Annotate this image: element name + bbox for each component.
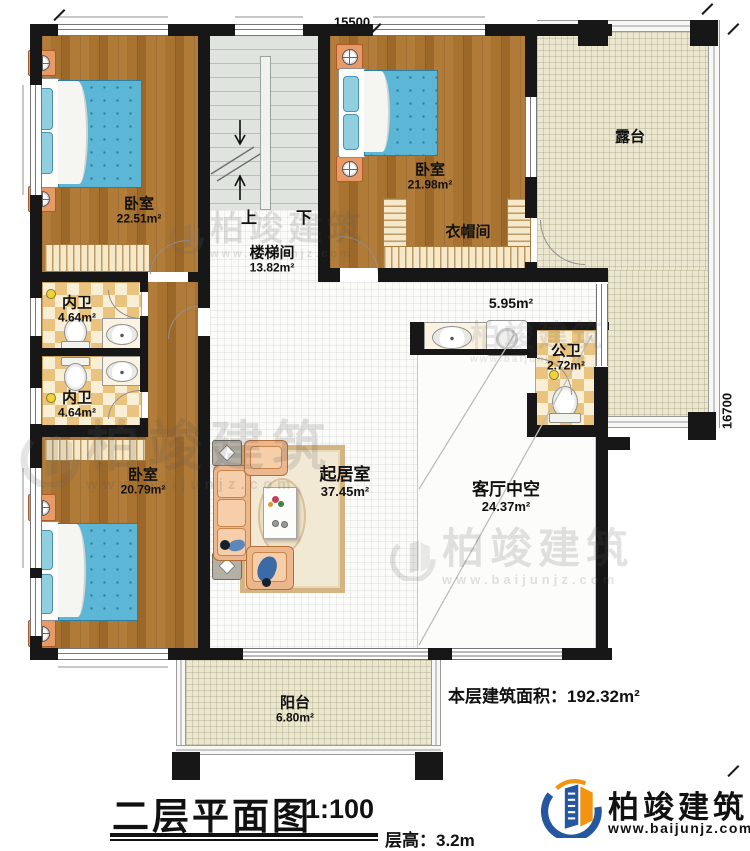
toilet-tank [549, 413, 581, 423]
side-table-top [219, 445, 236, 462]
wall-segment [140, 282, 148, 292]
sink [106, 324, 138, 345]
floor-height-note: 层高：3.2m [385, 826, 475, 851]
window [58, 24, 168, 36]
floor-plan-canvas: 柏竣建筑 www.baijunjz.com 柏竣建筑 www.baijunjz.… [0, 0, 750, 851]
wall-segment [198, 336, 210, 660]
room-name: 卧室 [121, 466, 166, 483]
table-flowers [278, 501, 284, 507]
title-underline-thin [110, 839, 378, 841]
room-area: 21.98m² [408, 179, 453, 193]
wall-segment [410, 349, 530, 355]
room-label-public-bath: 公卫 2.72m² [547, 342, 585, 373]
window-sill [58, 666, 168, 668]
bed-sheet [58, 81, 88, 184]
window [30, 578, 42, 636]
wall-segment [198, 24, 210, 282]
lamp-icon [342, 49, 358, 65]
column [688, 412, 716, 440]
brand-site: www.baijunjz.com [608, 820, 750, 836]
window [30, 298, 42, 336]
sliding-door [452, 648, 562, 660]
room-name: 起居室 [320, 465, 371, 485]
room-area: 20.79m² [121, 484, 166, 498]
bed-pillow [343, 114, 359, 150]
nightstand [336, 44, 363, 70]
room-label-stairwell: 楼梯间 13.82m² [249, 244, 294, 275]
window-sill [235, 16, 303, 18]
room-area: 4.64m² [58, 407, 96, 421]
toilet [64, 363, 87, 391]
column [172, 752, 200, 780]
dimension-tick [727, 765, 739, 777]
column [578, 20, 608, 46]
room-area: 24.37m² [472, 499, 540, 514]
person-head [262, 578, 271, 587]
nightstand [336, 156, 363, 182]
column [415, 752, 443, 780]
window-sill [58, 16, 168, 18]
room-name: 楼梯间 [249, 244, 294, 261]
ceiling-light-icon [46, 289, 56, 299]
cloakroom-rack-bottom [383, 246, 531, 270]
side-table [212, 440, 242, 466]
wall-segment [318, 24, 330, 282]
room-label-terrace: 露台 [615, 128, 645, 145]
room-name: 公卫 [547, 342, 585, 359]
dimension-tick [701, 3, 713, 15]
sink [432, 326, 472, 349]
room-area: 37.45m² [320, 484, 371, 499]
wall-segment [198, 282, 210, 308]
sofa-cushion [250, 446, 282, 469]
window [373, 24, 485, 36]
room-name: 内卫 [58, 294, 96, 311]
room-name: 衣帽间 [445, 223, 490, 240]
window [30, 388, 42, 424]
room-area: 22.51m² [117, 213, 162, 227]
stair-stringer [260, 56, 271, 210]
plan-scale: 1:100 [305, 794, 374, 825]
brand-logo-icon [538, 774, 602, 838]
room-name: 阳台 [276, 694, 314, 711]
room-area: 13.82m² [249, 262, 294, 276]
person-head [220, 540, 230, 550]
room-name: 卧室 [117, 195, 162, 212]
room-label-inner-bath-2: 内卫 4.64m² [58, 389, 96, 420]
room-label-inner-bath-1: 内卫 4.64m² [58, 294, 96, 325]
title-underline-thick [110, 833, 378, 837]
balcony-railing-bottom [176, 745, 441, 755]
wall-segment [330, 268, 340, 282]
coffee-table [263, 487, 297, 539]
bed-sheet [58, 524, 86, 617]
window-sill [373, 16, 485, 18]
room-area: 5.95m² [489, 295, 533, 311]
room-area: 6.80m² [276, 712, 314, 726]
wall-segment [527, 393, 537, 425]
room-area: 2.72m² [547, 360, 585, 374]
window [58, 648, 168, 660]
dimension-tick [727, 23, 739, 35]
column [690, 20, 718, 46]
wall-segment [30, 272, 148, 282]
balcony-railing-left [176, 660, 186, 755]
table-cups [272, 520, 279, 527]
wall-segment [188, 272, 198, 282]
wardrobe-bedroom-3 [44, 439, 146, 461]
bed-pillow [343, 76, 359, 112]
brand-logo [538, 774, 602, 838]
floor-terrace-lower [608, 270, 708, 416]
wall-segment [30, 348, 140, 356]
room-label-living: 起居室 37.45m² [320, 465, 371, 499]
window-sill [22, 85, 24, 195]
terrace-sliding-door [596, 284, 608, 366]
room-label-balcony: 阳台 6.80m² [276, 694, 314, 725]
sliding-door [243, 648, 428, 660]
window [30, 468, 42, 568]
window [30, 85, 42, 195]
room-area: 4.64m² [58, 312, 96, 326]
floor-area-note: 本层建筑面积：192.32m² [448, 682, 640, 707]
wall-segment [596, 425, 608, 660]
sofa-cushion [217, 499, 246, 527]
room-name: 卧室 [408, 161, 453, 178]
sink [106, 361, 138, 382]
ceiling-light-icon [46, 393, 56, 403]
dimension-right: 16700 [720, 393, 735, 429]
wall-segment [378, 268, 608, 282]
room-label-bedroom-3: 卧室 20.79m² [121, 466, 166, 497]
window [235, 24, 303, 36]
dimension-top: 15500 [334, 15, 370, 30]
window [525, 97, 537, 177]
wall-segment [30, 425, 148, 437]
room-label-cloakroom: 衣帽间 [445, 223, 490, 240]
washing-machine-door [496, 328, 518, 350]
room-name: 内卫 [58, 389, 96, 406]
bed-sheet [364, 71, 390, 152]
room-label-hallway: 5.95m² [489, 295, 533, 311]
terrace-railing-right [708, 20, 720, 428]
balcony-railing-right [431, 660, 441, 755]
room-label-bedroom-1: 卧室 22.51m² [117, 195, 162, 226]
room-label-void: 客厅中空 24.37m² [472, 480, 540, 514]
wall-segment [608, 437, 630, 450]
room-name: 露台 [615, 128, 645, 145]
table-flowers [268, 502, 273, 507]
room-label-bedroom-2: 卧室 21.98m² [408, 161, 453, 192]
room-name: 客厅中空 [472, 480, 540, 500]
sofa-cushion [217, 470, 246, 498]
wardrobe-bedroom-1 [44, 244, 150, 272]
window-sill [22, 468, 24, 568]
stair-up-label: 上 [241, 210, 257, 228]
floor-vestibule [148, 282, 198, 437]
wall-segment [527, 425, 608, 437]
lamp-icon [342, 161, 358, 177]
wall-segment [140, 316, 148, 392]
table-cups [281, 521, 288, 528]
plan-title: 二层平面图 [112, 786, 312, 840]
stair-down-label: 下 [296, 210, 312, 228]
